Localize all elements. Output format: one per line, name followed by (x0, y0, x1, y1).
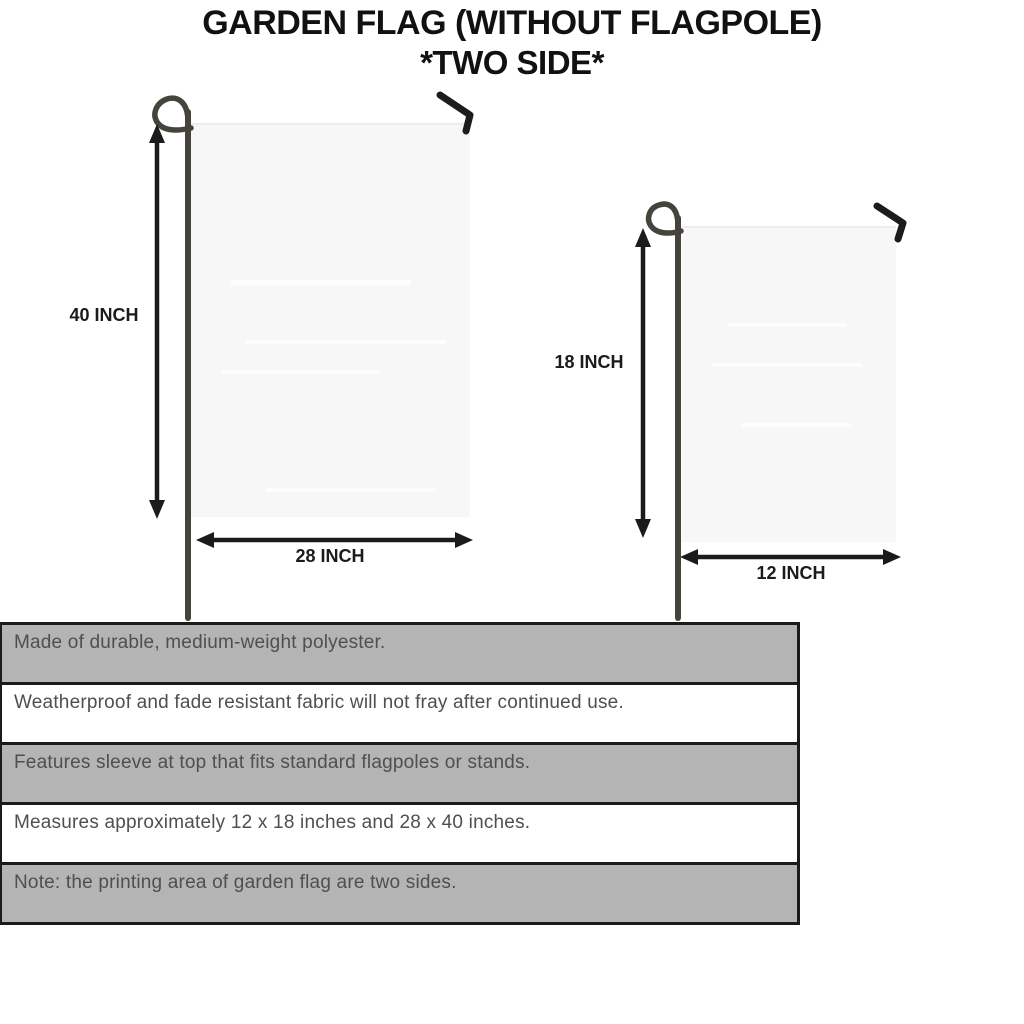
large-flag-hook-icon (440, 95, 470, 131)
large-flag-height-arrow-icon (149, 124, 165, 519)
garden-flag-infographic: GARDEN FLAG (WITHOUT FLAGPOLE) *TWO SIDE… (0, 0, 1024, 1024)
large-flagpole-icon (155, 98, 191, 618)
small-flag-width-label: 12 INCH (721, 563, 861, 584)
spec-row-sleeve: Features sleeve at top that fits standar… (2, 742, 797, 802)
spec-row-weatherproof: Weatherproof and fade resistant fabric w… (2, 682, 797, 742)
small-flag-hook-icon (877, 206, 903, 239)
spec-row-measures: Measures approximately 12 x 18 inches an… (2, 802, 797, 862)
spec-row-material: Made of durable, medium-weight polyester… (2, 625, 797, 682)
small-flag-height-arrow-icon (635, 228, 651, 538)
product-spec-table: Made of durable, medium-weight polyester… (0, 622, 800, 925)
large-flag-width-label: 28 INCH (260, 546, 400, 567)
large-flag-height-label: 40 INCH (62, 305, 146, 326)
small-flag-height-label: 18 INCH (548, 352, 630, 373)
small-flagpole-icon (649, 204, 681, 618)
spec-row-note: Note: the printing area of garden flag a… (2, 862, 797, 922)
